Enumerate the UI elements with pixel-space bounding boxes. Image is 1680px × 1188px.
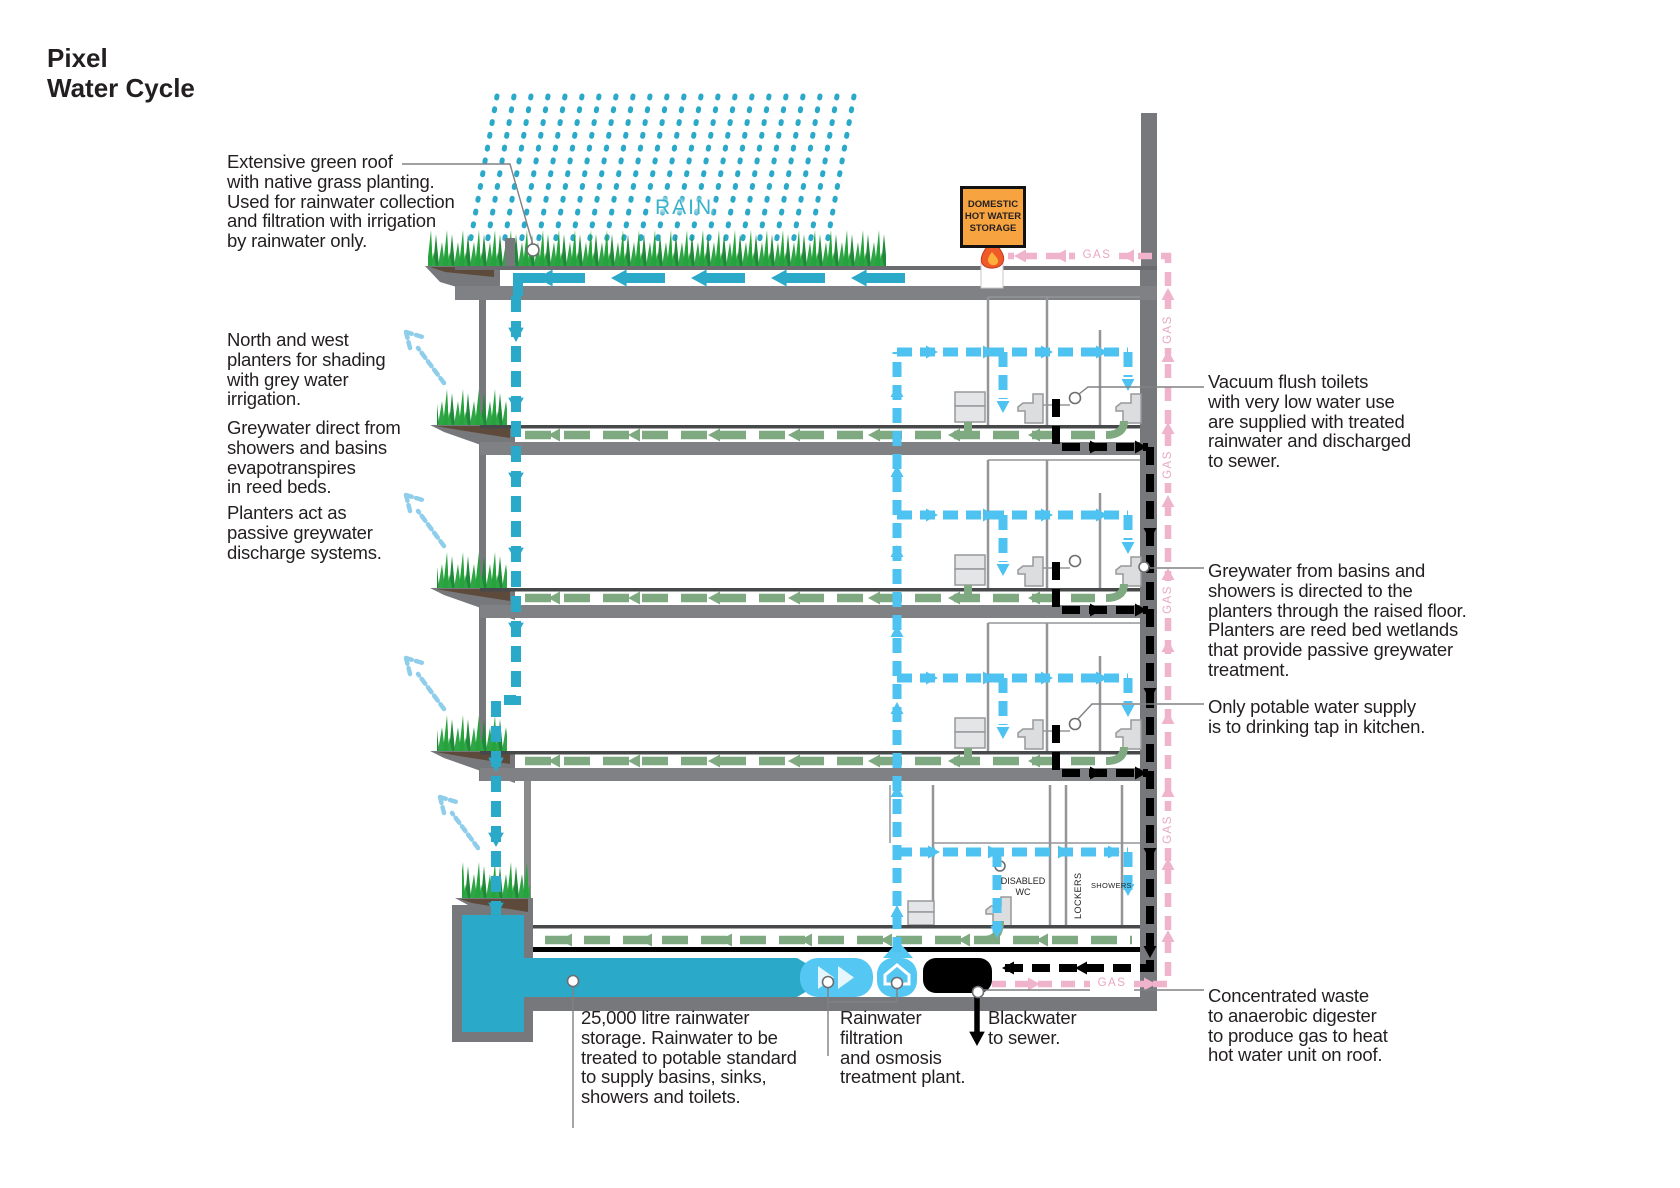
gas-label-vertical: GAS	[1161, 811, 1176, 848]
annotation-rainwater-filtration: Rainwater filtration and osmosis treatme…	[840, 1008, 965, 1087]
showers-label: SHOWERS	[1091, 881, 1129, 890]
pixel-water-cycle-diagram: Pixel Water Cycle Extensive green roof w…	[0, 0, 1680, 1188]
ground-vanity-unit	[908, 901, 934, 925]
gas-label-vertical: GAS	[1161, 581, 1176, 618]
hot-water-storage-box: DOMESTIC HOT WATER STORAGE	[960, 186, 1026, 248]
annotation-blackwater-sewer: Blackwater to sewer.	[988, 1008, 1076, 1048]
annotation-greywater-direct: Greywater direct from showers and basins…	[227, 418, 401, 497]
annotation-concentrated-waste: Concentrated waste to anaerobic digester…	[1208, 986, 1388, 1065]
gas-label-vertical: GAS	[1161, 446, 1176, 483]
leader-markers	[527, 244, 1149, 998]
annotation-planters-passive: Planters act as passive greywater discha…	[227, 503, 382, 562]
gas-label-bottom: GAS	[1090, 976, 1134, 991]
annotation-greywater-basins: Greywater from basins and showers is dir…	[1208, 561, 1467, 680]
rain-dots	[470, 96, 854, 243]
evapotranspiration-arrow-icon	[440, 797, 478, 848]
filtration-unit	[800, 958, 873, 997]
annotation-rainwater-storage: 25,000 litre rainwater storage. Rainwate…	[581, 1008, 797, 1107]
gas-label-vertical: GAS	[1161, 311, 1176, 348]
roof-grass	[428, 226, 886, 266]
roof-garden	[425, 226, 1157, 300]
ground-floor-line	[530, 925, 1140, 929]
rain-label: RAIN	[655, 196, 713, 220]
annotation-planters-shading: North and west planters for shading with…	[227, 330, 386, 409]
roof-kerb	[505, 238, 515, 266]
annotation-vacuum-toilets: Vacuum flush toilets with very low water…	[1208, 372, 1411, 471]
ground-level	[530, 785, 1140, 952]
gas-label-top: GAS	[1075, 248, 1119, 263]
roof-line	[455, 266, 1157, 270]
roof-slab	[455, 286, 1157, 300]
left-wall	[479, 266, 486, 781]
page-title: Pixel Water Cycle	[47, 44, 195, 104]
annotation-potable-supply: Only potable water supply is to drinking…	[1208, 697, 1425, 737]
basement-ceiling-line	[530, 947, 1140, 952]
annotation-green-roof: Extensive green roof with native grass p…	[227, 152, 455, 251]
roof-parapet-wall	[1141, 113, 1157, 266]
lockers-label: LOCKERS	[1072, 873, 1084, 919]
disabled-wc-label: DISABLED WC	[997, 876, 1049, 898]
